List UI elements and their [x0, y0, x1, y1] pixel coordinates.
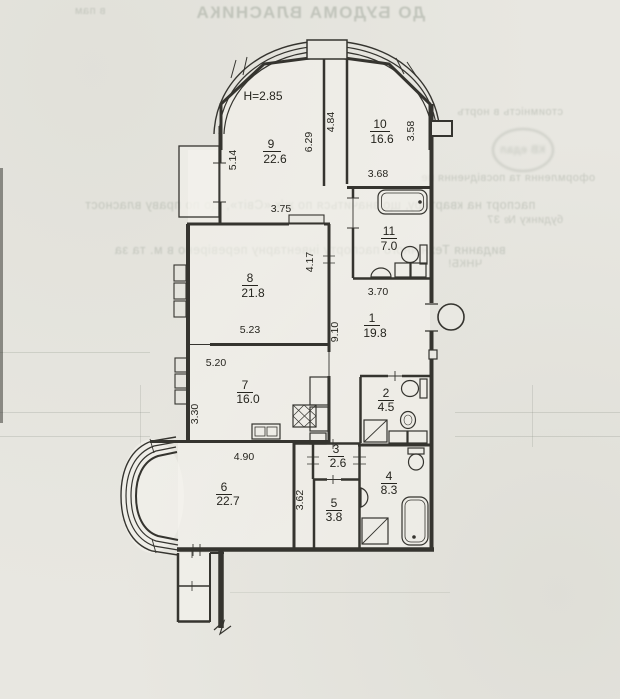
room-9-number: 9 [268, 137, 275, 151]
bathtub-drain [413, 536, 415, 538]
dim-5-23: 5.23 [240, 324, 261, 336]
dim-3-75: 3.75 [271, 203, 292, 215]
room-9-area: 22.6 [263, 152, 287, 166]
dim-3-68: 3.68 [368, 168, 389, 180]
room-10-number: 10 [373, 117, 387, 131]
ceiling-height-label: H=2.85 [243, 89, 282, 103]
dim-4-17: 4.17 [304, 252, 316, 273]
room-6-number: 6 [221, 480, 228, 494]
room-1-number: 1 [369, 311, 376, 325]
bathtub-drain [419, 201, 421, 203]
dim-3-70: 3.70 [368, 286, 389, 298]
room-3-number: 3 [333, 442, 340, 456]
scanned-floorplan-page: { "page": { "background_color": "#e8e7e1… [0, 0, 620, 699]
room-8-number: 8 [247, 271, 254, 285]
room-1-area: 19.8 [363, 326, 387, 340]
dim-4-84: 4.84 [325, 112, 337, 133]
room-10-area: 16.6 [370, 132, 394, 146]
room-5-area: 3.8 [326, 510, 343, 524]
dim-4-90: 4.90 [234, 451, 255, 463]
room-7-number: 7 [242, 378, 249, 392]
room-2-number: 2 [383, 386, 390, 400]
room-5-number: 5 [331, 496, 338, 510]
room-11-area: 7.0 [381, 239, 398, 253]
room-label-11: 11 7.0 [381, 224, 398, 253]
room-3-area: 2.6 [330, 456, 347, 470]
room-2-area: 4.5 [378, 400, 395, 414]
room-4-number: 4 [386, 469, 393, 483]
dim-6-29: 6.29 [303, 132, 315, 153]
right-wall-jog [429, 350, 437, 359]
pocket-door [289, 215, 324, 223]
radiator-room7 [175, 358, 187, 404]
dim-3-30: 3.30 [189, 404, 201, 425]
dim-3-62: 3.62 [294, 490, 306, 511]
dim-9-10: 9.10 [329, 322, 341, 343]
room-4-area: 8.3 [381, 483, 398, 497]
wall-break-symbol [214, 621, 231, 634]
arch-center-pillar [307, 40, 347, 59]
column-circle [438, 304, 464, 330]
room-11-number: 11 [383, 224, 396, 238]
dim-5-20: 5.20 [206, 357, 227, 369]
radiator-room8 [174, 265, 186, 317]
room-6-area: 22.7 [216, 494, 240, 508]
floor-plan-svg: 1 19.8 2 4.5 3 2.6 4 8.3 5 3.8 6 22.7 [0, 0, 620, 699]
right-wall-pilaster [431, 121, 452, 136]
dim-3-58: 3.58 [405, 121, 417, 142]
dim-5-14: 5.14 [227, 150, 239, 171]
room-8-area: 21.8 [241, 286, 265, 300]
room-7-area: 16.0 [236, 392, 260, 406]
